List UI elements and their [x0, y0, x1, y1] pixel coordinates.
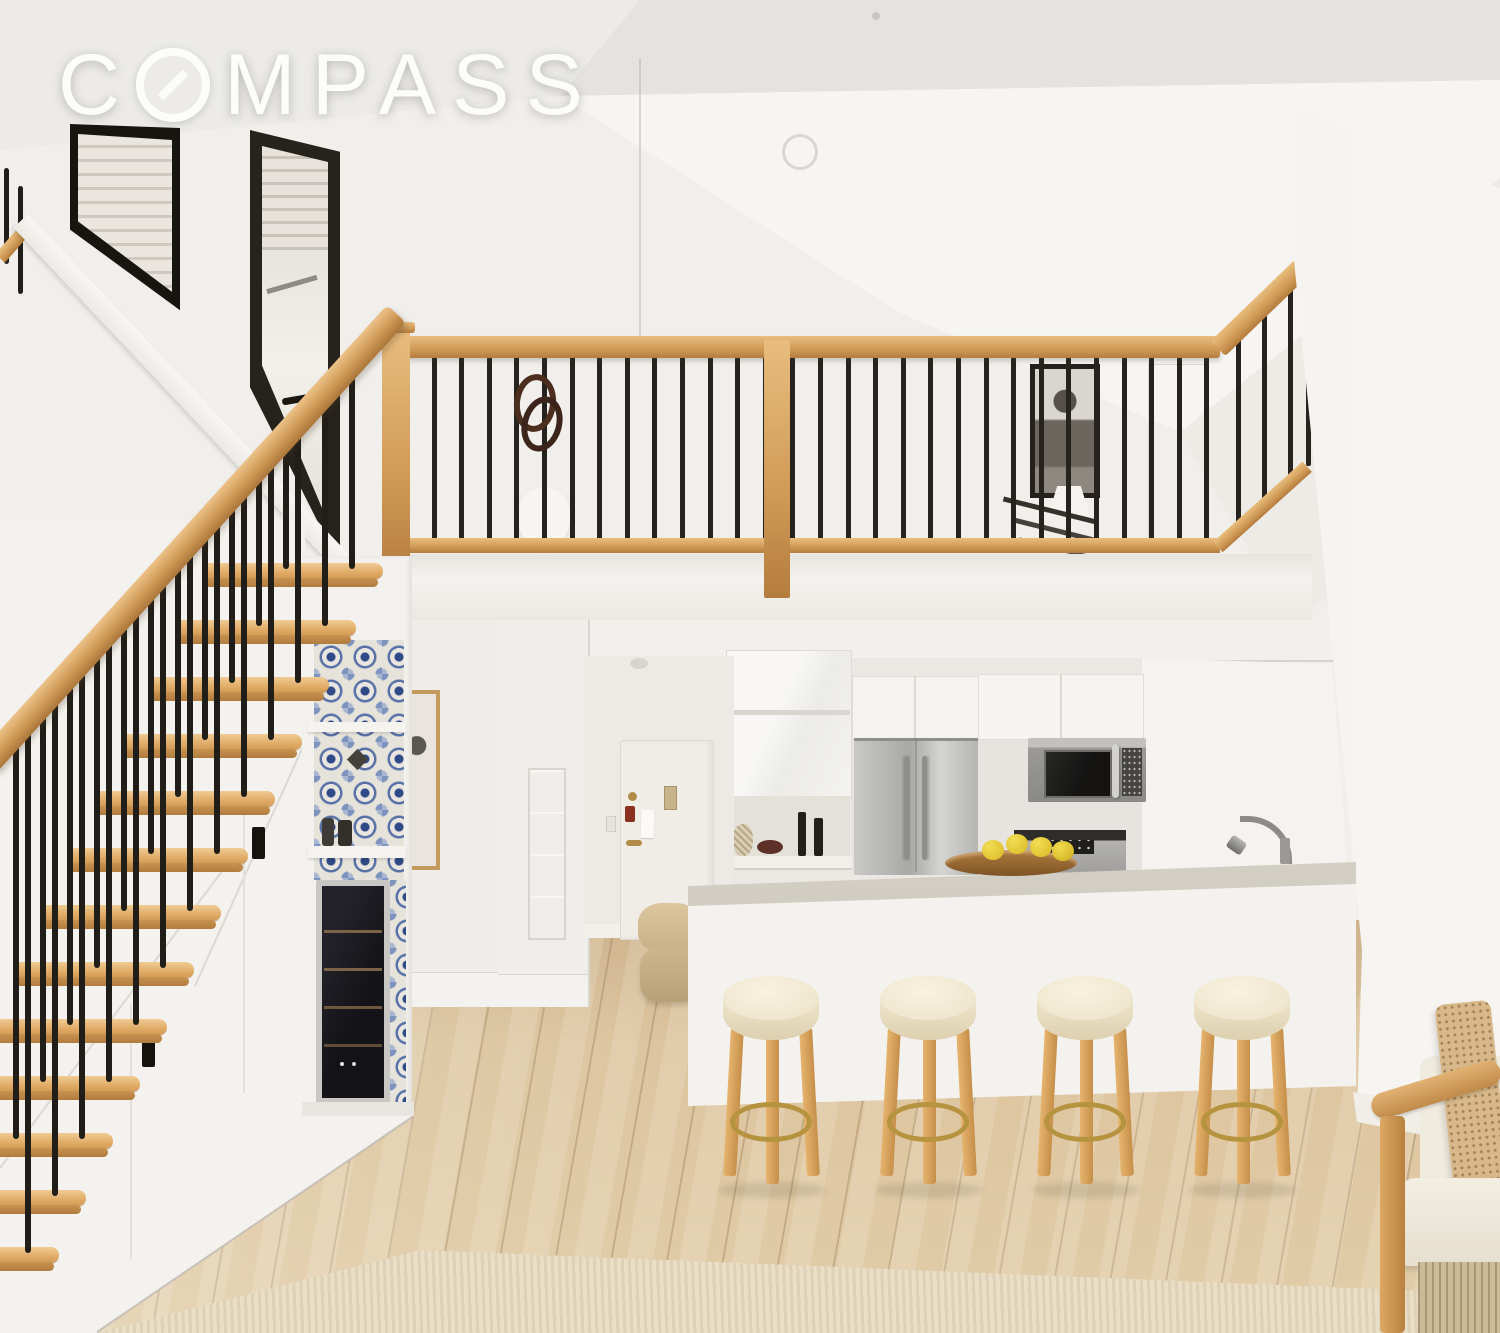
stool-leg [799, 1028, 820, 1176]
bar-stool [723, 976, 821, 1202]
stool-footrest-ring [730, 1102, 812, 1142]
lemon [1052, 841, 1074, 861]
stool-leg [956, 1028, 977, 1176]
lemon [1030, 837, 1052, 857]
stool-cushion-top [1037, 976, 1133, 1020]
armchair-base-panel [1418, 1262, 1500, 1333]
stool-floor-shadow [1032, 1182, 1140, 1198]
faucet-base [1280, 838, 1290, 864]
stool-cushion-top [1194, 976, 1290, 1020]
logo-letters-mpass: MPASS [224, 42, 599, 128]
stool-footrest-ring [1201, 1102, 1283, 1142]
lemon [1006, 834, 1028, 854]
bar-stool [880, 976, 978, 1202]
listing-photo: C MPASS [0, 0, 1500, 1333]
stool-footrest-ring [887, 1102, 969, 1142]
armchair-leg [1380, 1116, 1405, 1333]
stool-leg [723, 1028, 744, 1176]
stool-floor-shadow [875, 1182, 983, 1198]
armchair-seat [1396, 1178, 1500, 1266]
stool-floor-shadow [1189, 1182, 1297, 1198]
lemon [982, 840, 1004, 860]
stool-footrest-ring [1044, 1102, 1126, 1142]
stool-cushion-top [723, 976, 819, 1020]
stool-leg [1113, 1028, 1134, 1176]
stool-leg [1037, 1028, 1058, 1176]
compass-watermark: C MPASS [58, 42, 599, 128]
stool-leg [880, 1028, 901, 1176]
logo-compass-emblem-icon [136, 48, 210, 122]
stool-leg [1194, 1028, 1215, 1176]
bar-stool [1194, 976, 1292, 1202]
stool-leg [1270, 1028, 1291, 1176]
bar-stool [1037, 976, 1135, 1202]
stool-floor-shadow [718, 1182, 826, 1198]
stool-cushion-top [880, 976, 976, 1020]
logo-letter-c: C [58, 42, 136, 128]
